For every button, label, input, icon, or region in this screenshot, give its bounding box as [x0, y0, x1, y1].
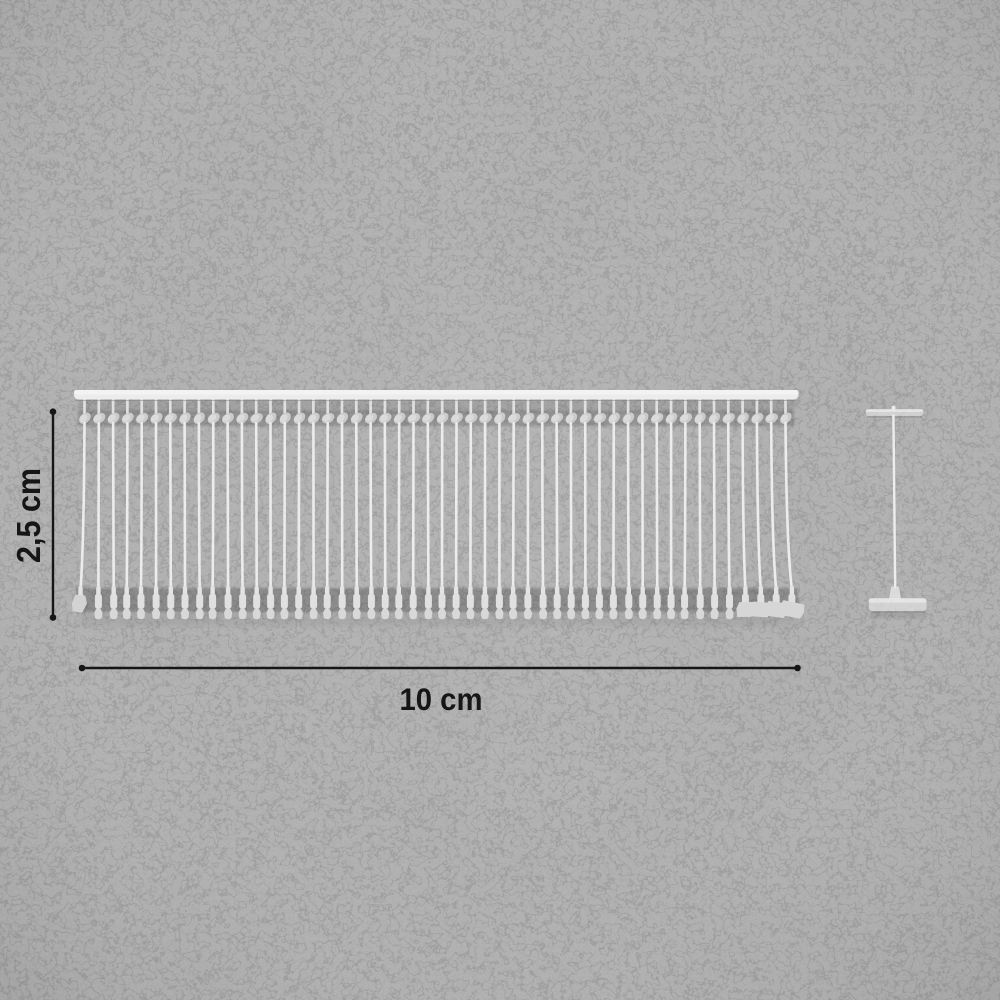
- svg-text:2,5 cm: 2,5 cm: [10, 468, 47, 563]
- svg-text:10 cm: 10 cm: [400, 681, 483, 717]
